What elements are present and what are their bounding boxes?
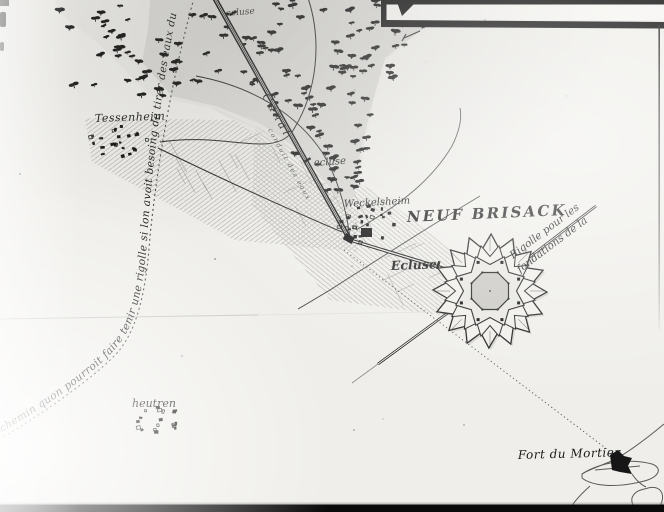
sheet-neatline (658, 25, 660, 330)
label-fort-du-mortier: Fort du Mortier (517, 445, 622, 462)
weckelsheim-large-building (361, 228, 372, 237)
map-canvas: Tessenheim Weckelsheim NEUF BRISACK eclu… (0, 0, 664, 512)
photo-border-bottom (0, 505, 664, 512)
scanned-map-page: Tessenheim Weckelsheim NEUF BRISACK eclu… (0, 0, 664, 512)
fortress-road (352, 312, 449, 383)
label-heutren: heutren (132, 397, 176, 410)
neuf-brisack-fortress (433, 234, 549, 350)
edge-smudges (0, 0, 9, 51)
paper-crease (0, 312, 430, 319)
label-ecluse-lower: Ecluse (390, 256, 438, 273)
label-weckelsheim: Weckelsheim (344, 196, 411, 210)
label-neuf-brisack: NEUF BRISACK (405, 201, 567, 226)
border-shadow (0, 503, 664, 505)
label-ecluse-middle: ecluse (313, 156, 346, 169)
